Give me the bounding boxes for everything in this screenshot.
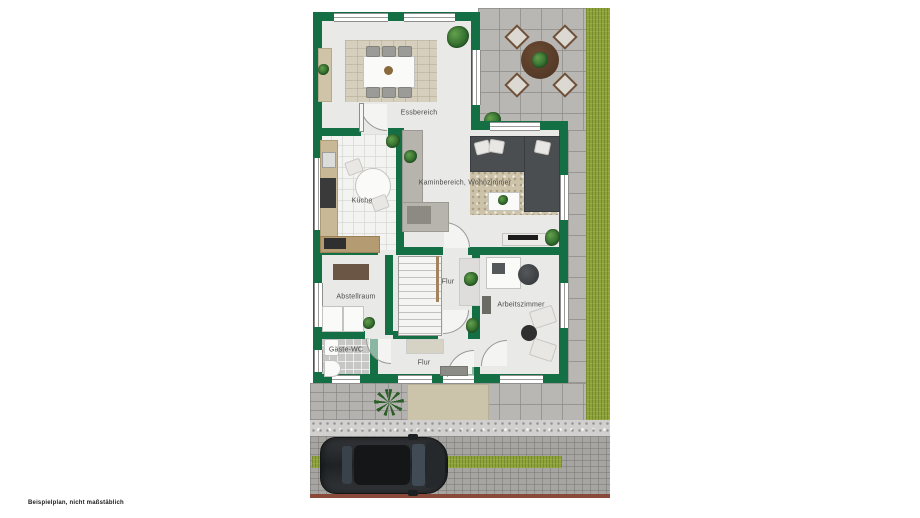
office-chair — [518, 264, 539, 285]
dryer — [343, 306, 364, 332]
washer — [322, 306, 343, 332]
terrace-door-living — [560, 175, 569, 220]
table-centerpiece — [384, 66, 393, 75]
side-table — [521, 325, 537, 341]
cooktop — [324, 238, 346, 249]
window-office-bottom — [500, 375, 543, 384]
window-office-right — [560, 283, 569, 328]
wall-lower-1 — [313, 331, 365, 339]
dining-chair-2 — [382, 46, 396, 57]
car-mirror-top — [408, 434, 418, 440]
window-living-top — [490, 122, 540, 131]
fireplace-inner — [407, 206, 431, 224]
sofa-pillow-2 — [488, 139, 505, 154]
room-label-gaeste-wc: Gäste-WC — [329, 347, 363, 354]
lawn-right-strip — [586, 8, 610, 420]
car-windshield — [412, 444, 425, 486]
window-wc-left — [314, 350, 323, 372]
room-label-flur-eingang: Flur — [418, 360, 431, 367]
sideboard — [318, 48, 332, 102]
room-label-essbereich: Essbereich — [401, 110, 438, 117]
wall-mid-3 — [468, 247, 568, 255]
window-hall-bottom — [398, 375, 432, 384]
car-roof — [354, 445, 410, 485]
pavers-right-strip — [568, 130, 586, 383]
sofa-pillow-3 — [534, 140, 551, 156]
window-dining-top-1 — [334, 13, 388, 22]
entry-bench — [440, 366, 468, 376]
laptop — [492, 263, 505, 274]
tv — [508, 235, 538, 240]
gravel-band — [310, 420, 610, 436]
window-wc-bottom — [332, 375, 360, 384]
room-label-wohnzimmer: Kaminbereich, Wohnzimmer — [419, 180, 512, 187]
kitchen-sink — [322, 152, 336, 168]
dining-chair-4 — [366, 87, 380, 98]
floorplan-canvas: Essbereich Küche Kaminbereich, Wohnzimme… — [0, 0, 920, 518]
curb-line — [310, 494, 610, 498]
window-dining-top-2 — [404, 13, 455, 22]
wall-mid-2 — [396, 247, 443, 255]
stove — [320, 178, 336, 208]
lawn-strip-right — [447, 456, 562, 468]
car-hood — [426, 442, 445, 488]
dining-chair-6 — [398, 87, 412, 98]
disclaimer-text: Beispielplan, nicht maßstäblich — [28, 500, 124, 506]
toilet — [324, 360, 341, 377]
entry-path — [407, 384, 489, 422]
door-leaf-dining — [359, 103, 364, 132]
car-mirror-bottom — [408, 490, 418, 496]
terrace-door-dining — [472, 50, 481, 105]
wall-dining-kitchen — [313, 128, 361, 136]
dining-chair-5 — [382, 87, 396, 98]
entry-rug — [406, 339, 444, 354]
car-rear-window — [342, 446, 352, 484]
dining-chair-3 — [398, 46, 412, 57]
room-label-flur-treppe: Flur — [442, 279, 455, 286]
room-label-abstellraum: Abstellraum — [336, 294, 375, 301]
dining-chair-1 — [366, 46, 380, 57]
storage-mat — [333, 264, 369, 280]
room-label-arbeitszimmer: Arbeitszimmer — [497, 302, 544, 309]
room-label-kueche: Küche — [352, 198, 373, 205]
car — [320, 437, 448, 494]
stair-stringer — [436, 256, 439, 302]
bookshelf — [482, 296, 491, 314]
wall-storage-hall — [385, 255, 393, 335]
palm-plant — [374, 389, 404, 416]
